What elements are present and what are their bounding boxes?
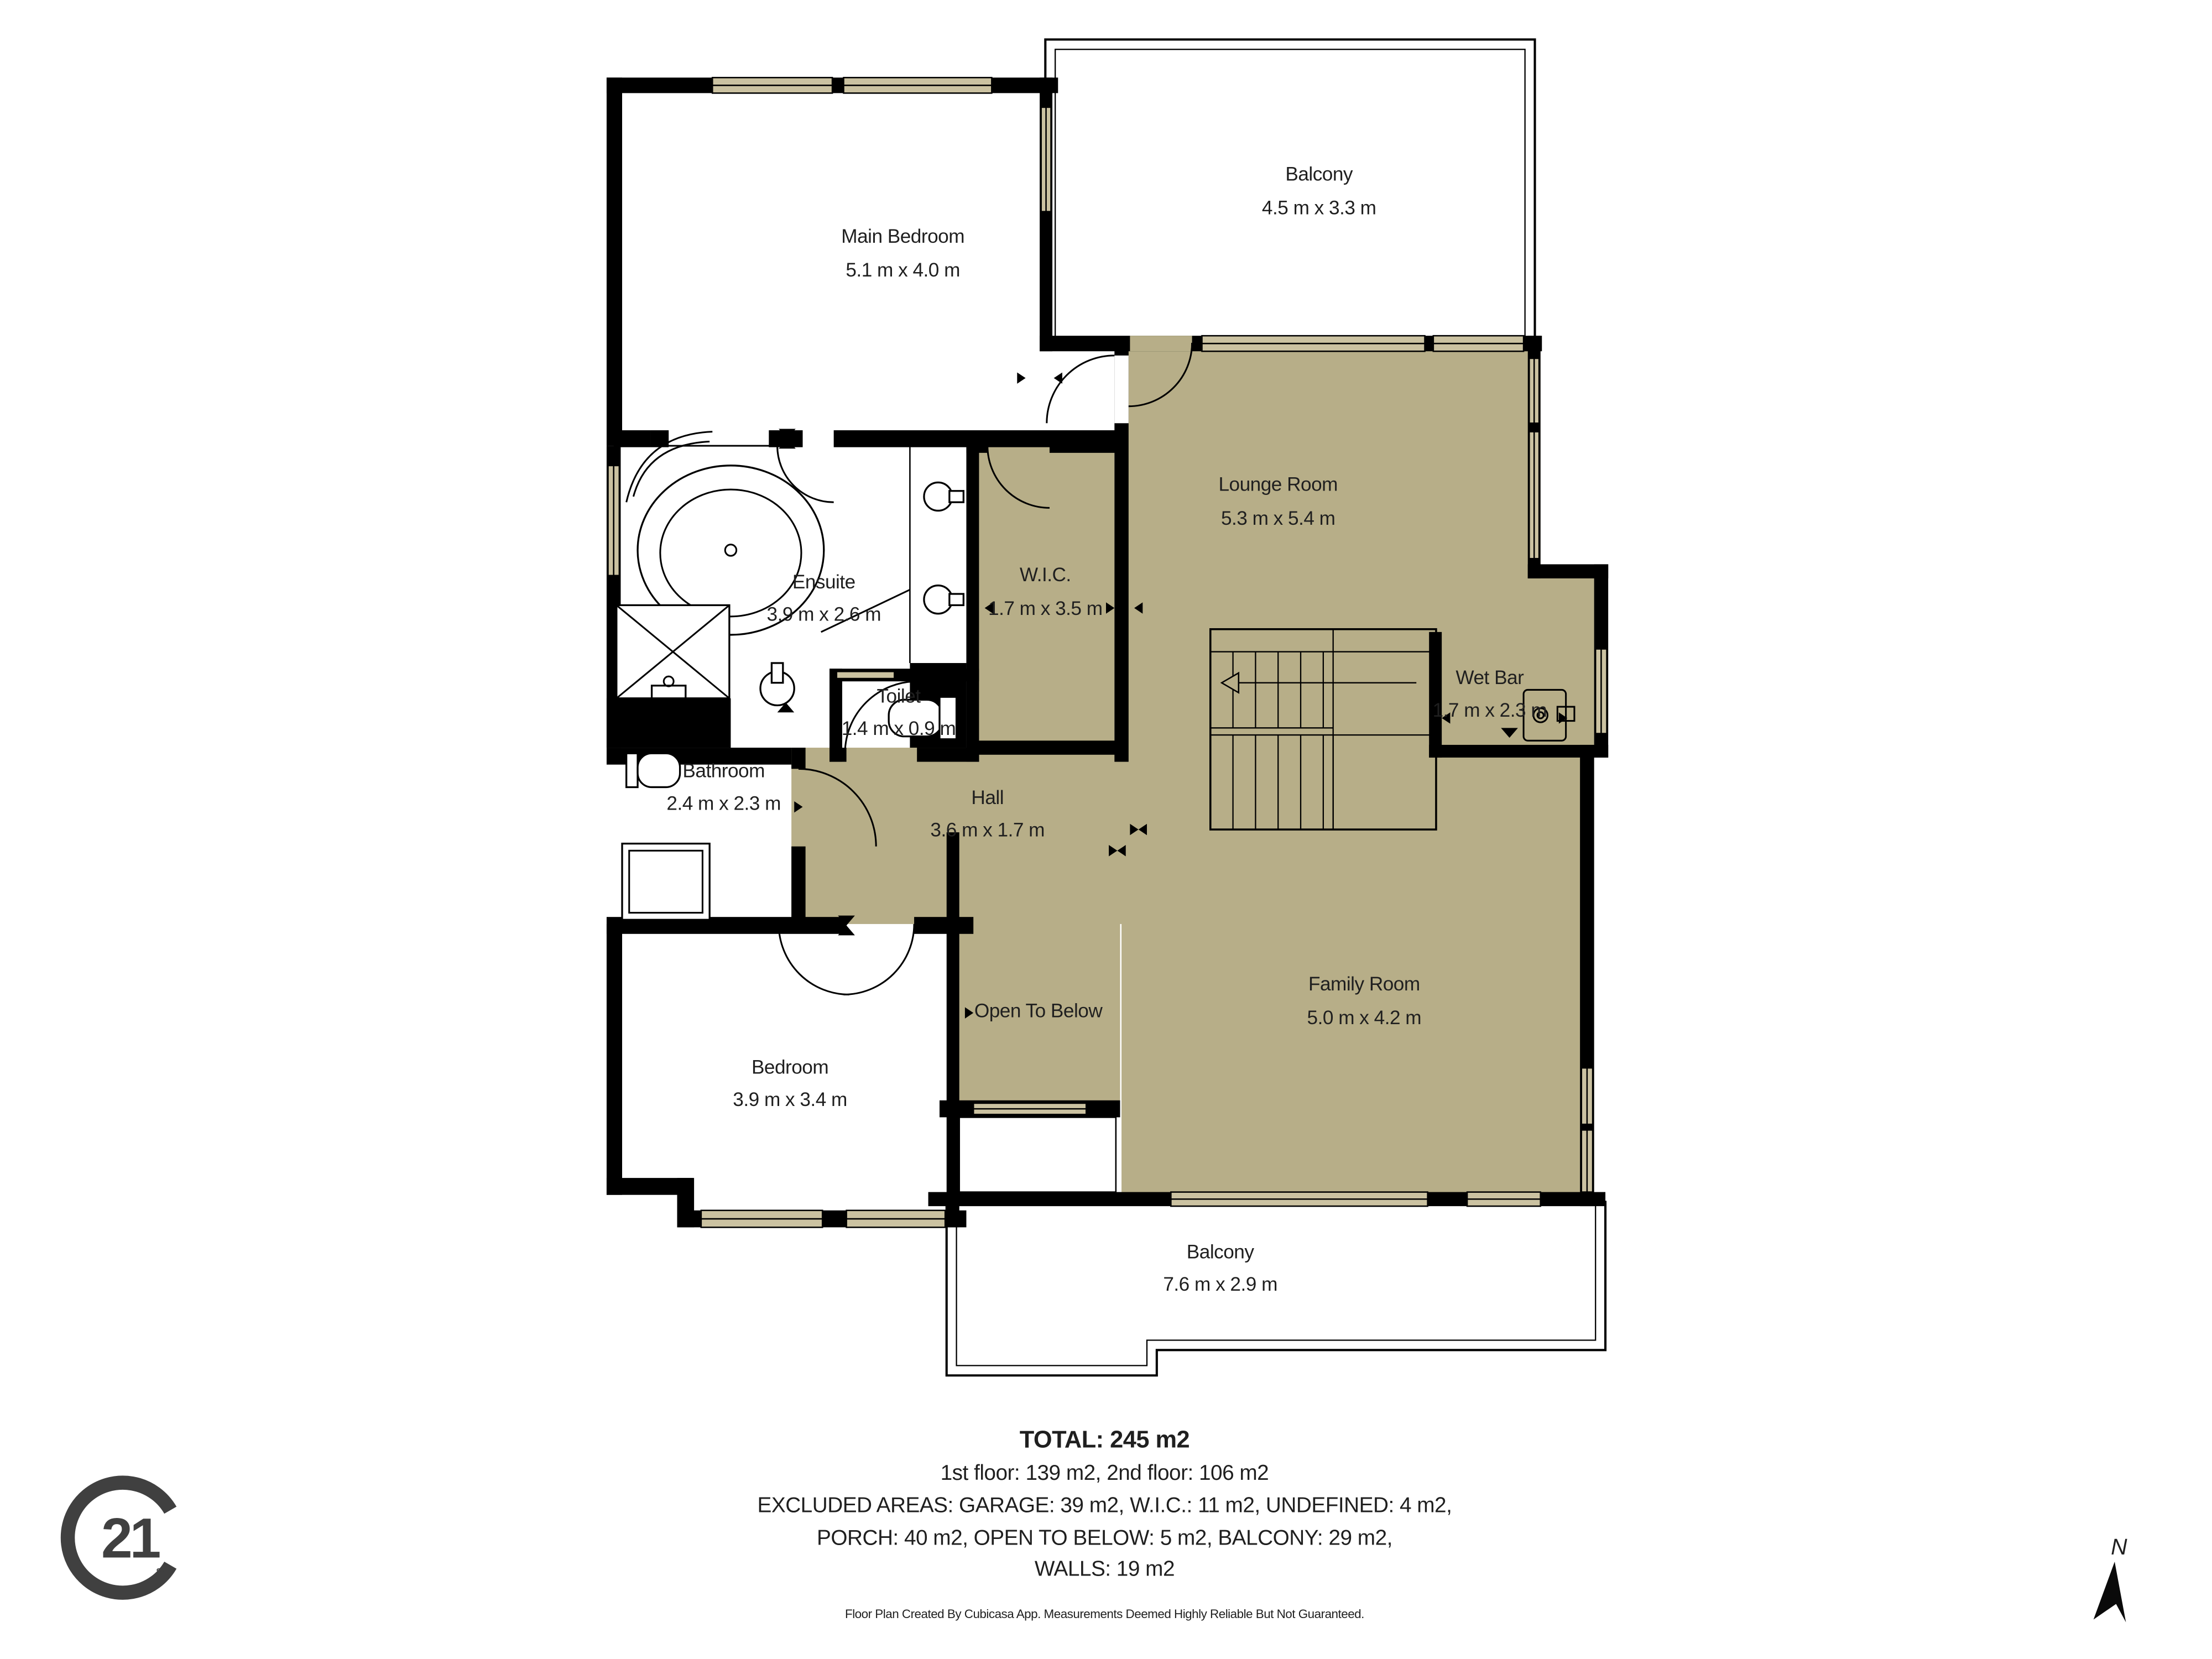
- room-label-bathroom: Bathroom 2.4 m x 2.3 m: [666, 760, 781, 815]
- wall-wic-bottom: [966, 740, 1121, 755]
- north-arrow-icon: [2094, 1562, 2126, 1623]
- floorplan-canvas: Main Bedroom 5.1 m x 4.0 m Balcony 4.5 m…: [0, 0, 2212, 1659]
- room-dims: 5.1 m x 4.0 m: [846, 259, 960, 281]
- area-summary: TOTAL: 245 m2 1st floor: 139 m2, 2nd flo…: [758, 1426, 1452, 1621]
- north-compass: N: [2094, 1534, 2127, 1622]
- summary-excluded-1: EXCLUDED AREAS: GARAGE: 39 m2, W.I.C.: 1…: [758, 1494, 1452, 1517]
- mainbed-door-gap: [1114, 356, 1129, 423]
- balcony-pocket: [959, 1117, 1116, 1192]
- room-name: Family Room: [1308, 973, 1420, 995]
- wall-ensuite-top-a: [614, 430, 650, 447]
- vanity-sink-2: [924, 586, 952, 614]
- room-dims: 7.6 m x 2.9 m: [1163, 1274, 1277, 1295]
- room-name: Lounge Room: [1218, 474, 1337, 495]
- room-name: Bedroom: [752, 1056, 828, 1078]
- wall-mainbed-left: [607, 77, 622, 446]
- wall-bedroom-left: [607, 924, 622, 1195]
- wall-bathroom-right-a: [791, 748, 806, 769]
- summary-floors: 1st floor: 139 m2, 2nd floor: 106 m2: [941, 1461, 1269, 1485]
- bathroom-toilet-tank: [627, 753, 638, 787]
- vanity-tap-2: [950, 594, 964, 605]
- room-dims: 4.5 m x 3.3 m: [1262, 197, 1376, 219]
- wall-bedroom-right: [947, 832, 959, 1227]
- floor-fills: [791, 343, 1594, 1199]
- room-dims: 2.4 m x 2.3 m: [666, 792, 781, 814]
- wall-wetbar-left: [1429, 632, 1442, 758]
- summary-total: TOTAL: 245 m2: [1020, 1426, 1190, 1453]
- logo-sm-mark: SM: [156, 1567, 168, 1577]
- disclaimer-text: Floor Plan Created By Cubicasa App. Meas…: [845, 1607, 1364, 1621]
- summary-excluded-3: WALLS: 19 m2: [1035, 1557, 1175, 1580]
- wall-wic-top-a: [966, 437, 987, 453]
- wic-floor: [973, 446, 1114, 748]
- wall-toilet-bottom-a: [830, 748, 847, 762]
- room-name: Open To Below: [974, 1000, 1103, 1021]
- wet-bar-floor: [1436, 571, 1594, 755]
- compass-label: N: [2111, 1534, 2127, 1559]
- room-dims: 3.9 m x 3.4 m: [733, 1089, 847, 1110]
- vanity-tap-1: [950, 491, 964, 502]
- room-label-open-to-below: Open To Below: [974, 1000, 1103, 1021]
- wall-ensuite-top-pier1: [650, 430, 669, 447]
- bathroom-toilet-bowl: [638, 753, 680, 787]
- room-name: Wet Bar: [1455, 667, 1524, 688]
- room-name: Main Bedroom: [841, 226, 964, 247]
- wall-wic-top-b: [1050, 437, 1121, 453]
- room-name: W.I.C.: [1020, 564, 1071, 586]
- room-dims: 1.7 m x 2.3 m: [1433, 700, 1547, 721]
- room-dims: 1.4 m x 0.9 m: [842, 718, 956, 739]
- summary-excluded-2: PORCH: 40 m2, OPEN TO BELOW: 5 m2, BALCO…: [817, 1526, 1392, 1550]
- bathroom-shower-outer: [622, 844, 709, 920]
- room-name: Balcony: [1285, 164, 1353, 185]
- room-name: Balcony: [1187, 1241, 1255, 1263]
- century21-logo: 21 SM: [68, 1483, 171, 1593]
- room-dims: 5.3 m x 5.4 m: [1221, 508, 1335, 529]
- floorplan-page: Main Bedroom 5.1 m x 4.0 m Balcony 4.5 m…: [0, 0, 2212, 1659]
- main-bedroom-door-arc: [1047, 356, 1114, 423]
- wall-bathroom-right-b: [791, 847, 806, 924]
- vanity-sink-1: [924, 482, 952, 510]
- balcony-top-railing: [1045, 39, 1535, 342]
- room-label-bedroom: Bedroom 3.9 m x 3.4 m: [733, 1056, 847, 1110]
- anteroom-tap: [771, 663, 782, 683]
- wall-wic-left: [966, 437, 979, 762]
- room-name: Ensuite: [792, 571, 855, 593]
- room-dims: 3.6 m x 1.7 m: [930, 820, 1045, 841]
- room-name: Bathroom: [682, 760, 764, 782]
- logo-number: 21: [101, 1506, 160, 1569]
- room-name: Hall: [971, 787, 1004, 808]
- room-name: Toilet: [877, 685, 921, 707]
- balcony-door-threshold: [1130, 336, 1192, 351]
- room-dims: 5.0 m x 4.2 m: [1307, 1007, 1422, 1029]
- balcony-top-outer: [1045, 39, 1535, 342]
- room-dims: 3.9 m x 2.6 m: [767, 603, 881, 625]
- wall-bedroom-top-b: [914, 917, 973, 934]
- room-label-main-bedroom: Main Bedroom 5.1 m x 4.0 m: [841, 226, 964, 281]
- wall-below-shower: [607, 698, 731, 748]
- room-dims: 1.7 m x 3.5 m: [988, 598, 1103, 619]
- shower-faucet: [652, 686, 686, 698]
